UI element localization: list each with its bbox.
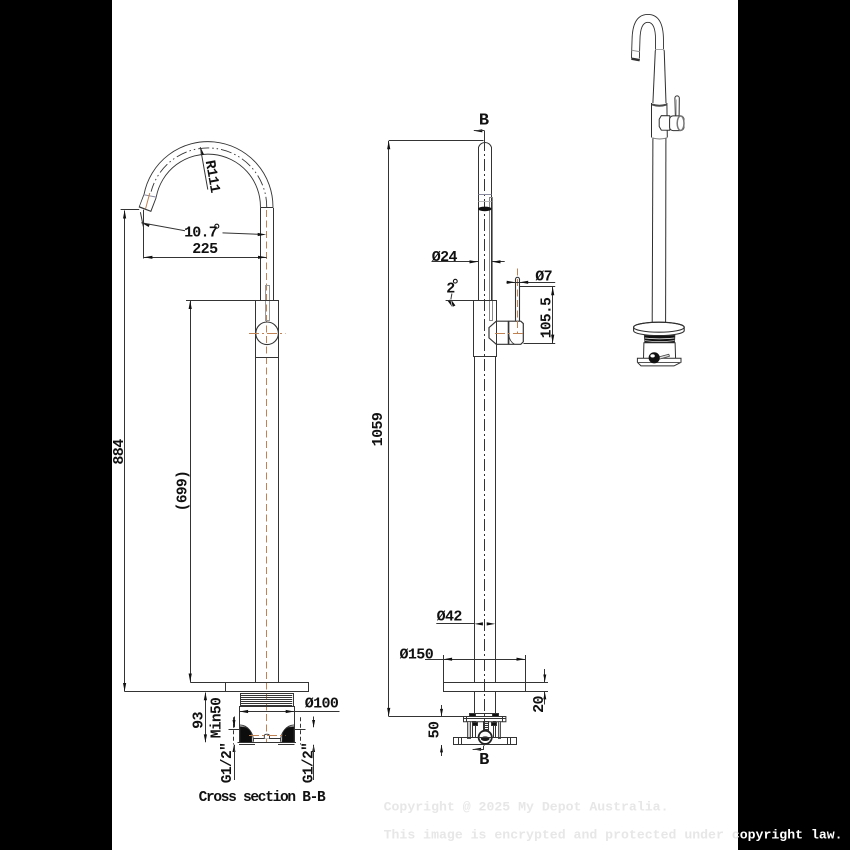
svg-text:B: B [479,112,489,131]
svg-text:Cross section B-B: Cross section B-B [199,790,326,806]
svg-text:Ø42: Ø42 [437,609,463,626]
svg-text:50: 50 [427,721,444,738]
svg-text:93: 93 [191,712,208,729]
svg-text:225: 225 [192,241,218,258]
svg-text:Min50: Min50 [210,698,226,739]
svg-text:20: 20 [531,696,548,713]
svg-text:1059: 1059 [370,412,387,446]
svg-text:G1/2": G1/2" [220,743,236,784]
svg-text:Ø100: Ø100 [305,696,339,713]
svg-text:10.7: 10.7 [184,224,217,241]
svg-text:B: B [479,751,489,770]
svg-text:G1/2": G1/2" [302,743,318,784]
svg-text:105.5: 105.5 [540,298,556,339]
svg-text:Copyright @ 2025 My Depot Aust: Copyright @ 2025 My Depot Australia. [384,800,669,815]
svg-text:(699): (699) [176,471,192,512]
svg-text:884: 884 [111,439,128,465]
svg-text:Ø150: Ø150 [399,647,433,664]
svg-text:Ø24: Ø24 [432,249,458,266]
